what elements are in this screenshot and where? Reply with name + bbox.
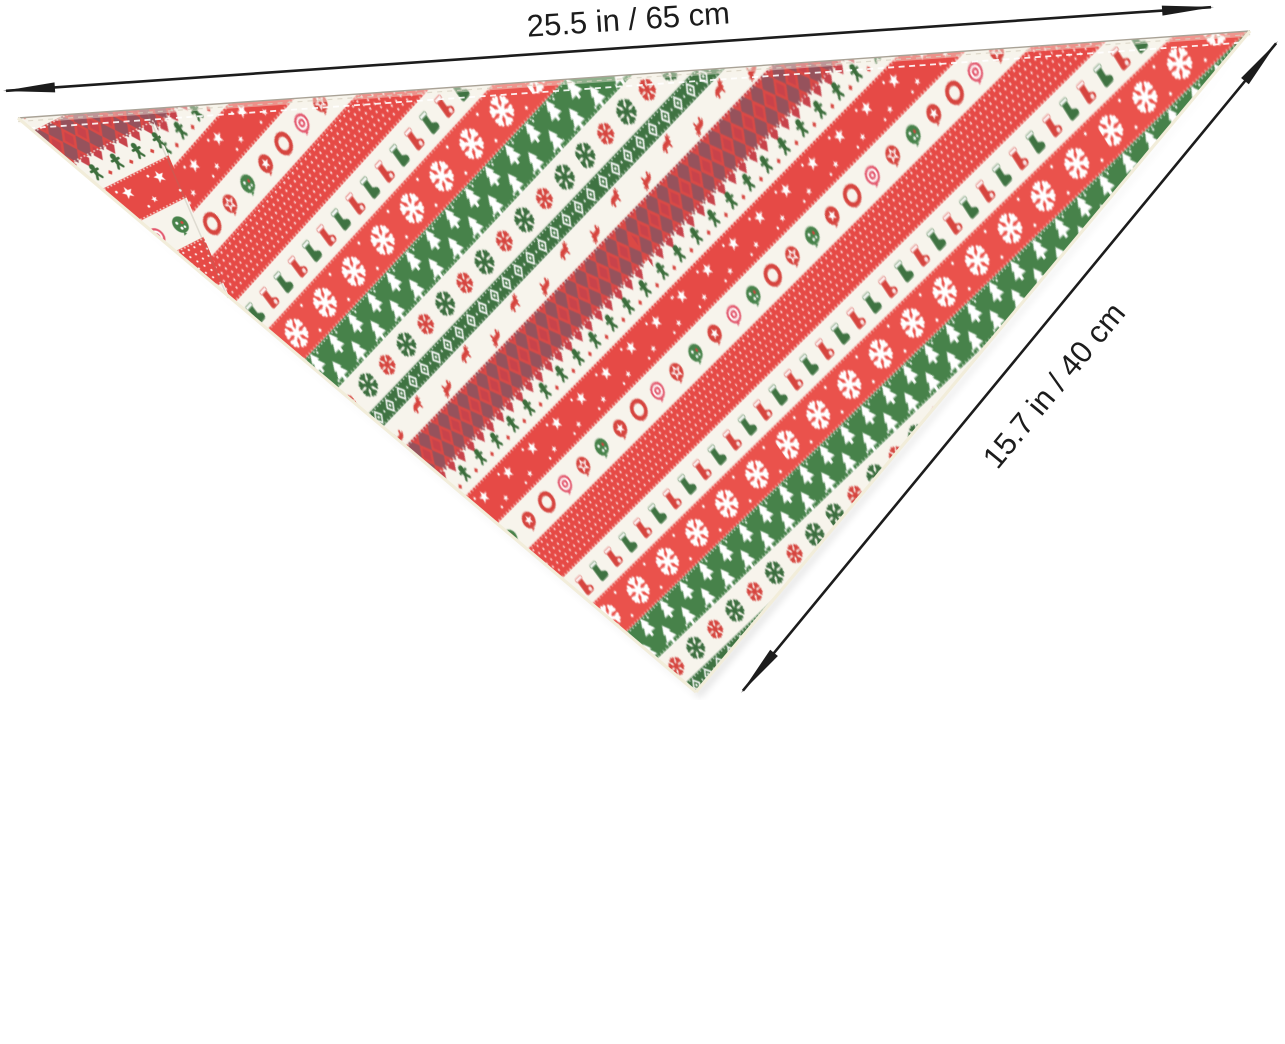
svg-text:15.7 in / 40 cm: 15.7 in / 40 cm xyxy=(976,296,1132,475)
svg-text:25.5 in / 65 cm: 25.5 in / 65 cm xyxy=(526,0,731,44)
